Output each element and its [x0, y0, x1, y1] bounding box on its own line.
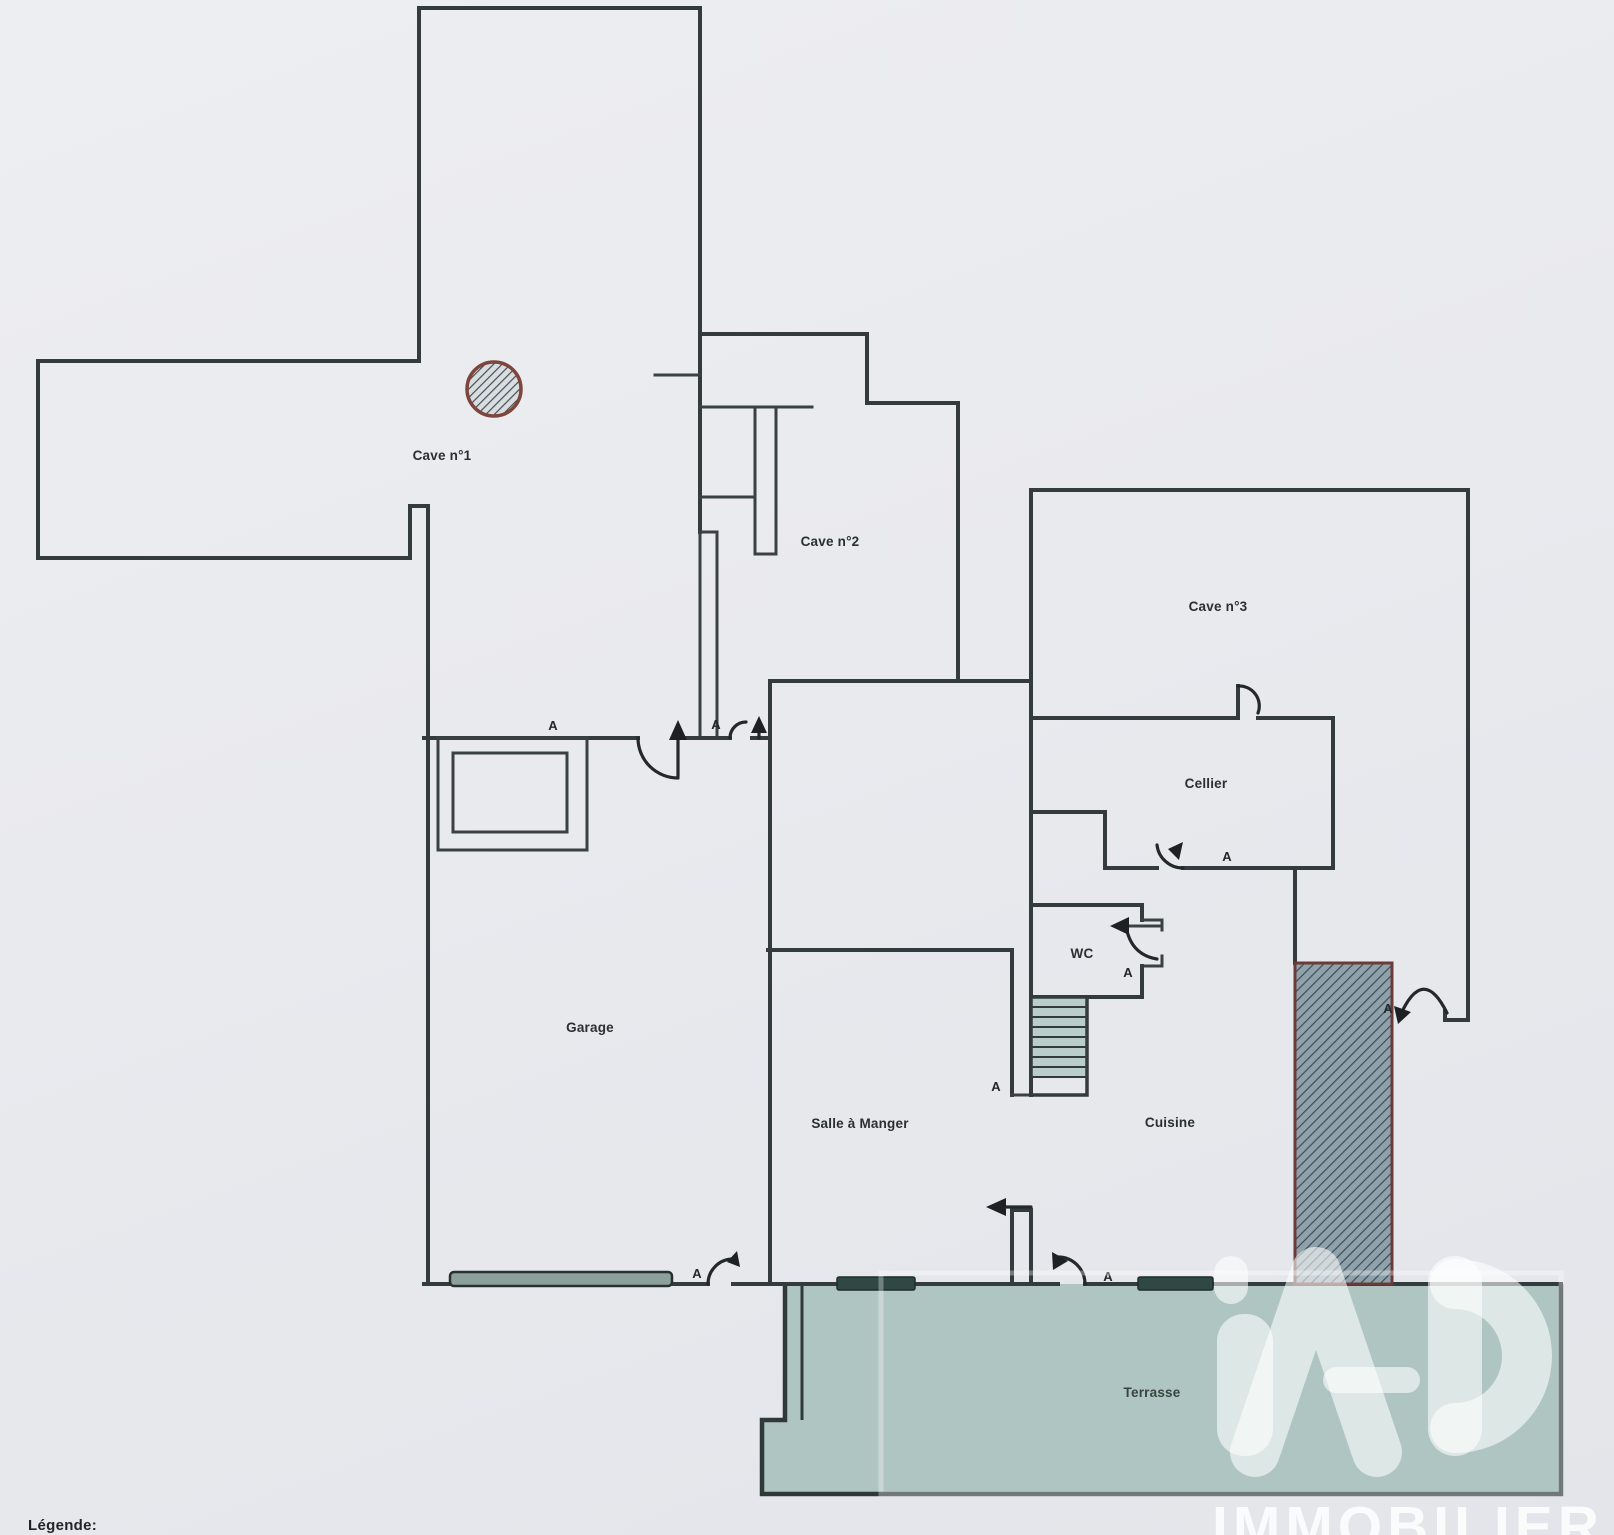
cave2-outline [700, 334, 958, 681]
window-bar-2 [1138, 1277, 1213, 1290]
up-arrow-icon-2 [751, 716, 767, 733]
door-labels: A A A A A A A A [548, 717, 1393, 1284]
door-label-2: A [711, 717, 721, 732]
label-cave1: Cave n°1 [413, 448, 472, 463]
door-label-8: A [1383, 1001, 1393, 1016]
cellier-top-door-arc [1238, 686, 1259, 713]
label-cave3: Cave n°3 [1189, 599, 1248, 614]
floor-plan-page: Cave n°1 Cave n°2 Cave n°3 Cellier WC Ga… [0, 0, 1614, 1535]
door-label-4: A [1123, 965, 1133, 980]
pillar-hatch-icon [467, 362, 521, 416]
watermark-subtitle: IMMOBILIER [1212, 1495, 1604, 1535]
label-cave2: Cave n°2 [801, 534, 860, 549]
window-bar-1 [837, 1277, 915, 1290]
up-arrow-icon-1 [669, 720, 687, 740]
left-arrow-icon-passage [986, 1198, 1006, 1216]
floor-plan: Cave n°1 Cave n°2 Cave n°3 Cellier WC Ga… [0, 0, 1614, 1535]
garage-door-bar [450, 1272, 672, 1286]
label-cuisine: Cuisine [1145, 1115, 1195, 1130]
label-wc: WC [1071, 946, 1094, 961]
left-arrow-icon-wc [1110, 917, 1129, 935]
cellier-bottom-left [1031, 812, 1157, 868]
storage-box-inner [453, 753, 567, 832]
legend-title: Légende: [28, 1517, 97, 1534]
door-label-5: A [991, 1079, 1001, 1094]
label-terrasse: Terrasse [1124, 1385, 1181, 1400]
door-arc-hall [730, 722, 746, 738]
wc-door-arc [1127, 931, 1157, 959]
up-arrow-icon-3 [1168, 842, 1183, 860]
door-label-6: A [692, 1266, 702, 1281]
cave1-outline [38, 8, 700, 1284]
door-arc-garage-top [638, 738, 678, 778]
shaft-hatch-icon [1295, 963, 1392, 1284]
wc-top [1031, 905, 1142, 920]
wall-slab-2 [700, 532, 717, 738]
door-label-1: A [548, 718, 558, 733]
cellier-right [1183, 718, 1333, 868]
label-salle-a-manger: Salle à Manger [811, 1116, 909, 1131]
label-cellier: Cellier [1185, 776, 1228, 791]
cave3-outline [1031, 490, 1468, 1020]
stairs [1031, 997, 1087, 1095]
door-label-3: A [1222, 849, 1232, 864]
wall-slab-1 [755, 407, 776, 554]
up-arrow-icon-5 [1052, 1252, 1068, 1270]
label-garage: Garage [566, 1020, 614, 1035]
hatched-elements [467, 362, 1392, 1284]
walls [38, 8, 1468, 1284]
